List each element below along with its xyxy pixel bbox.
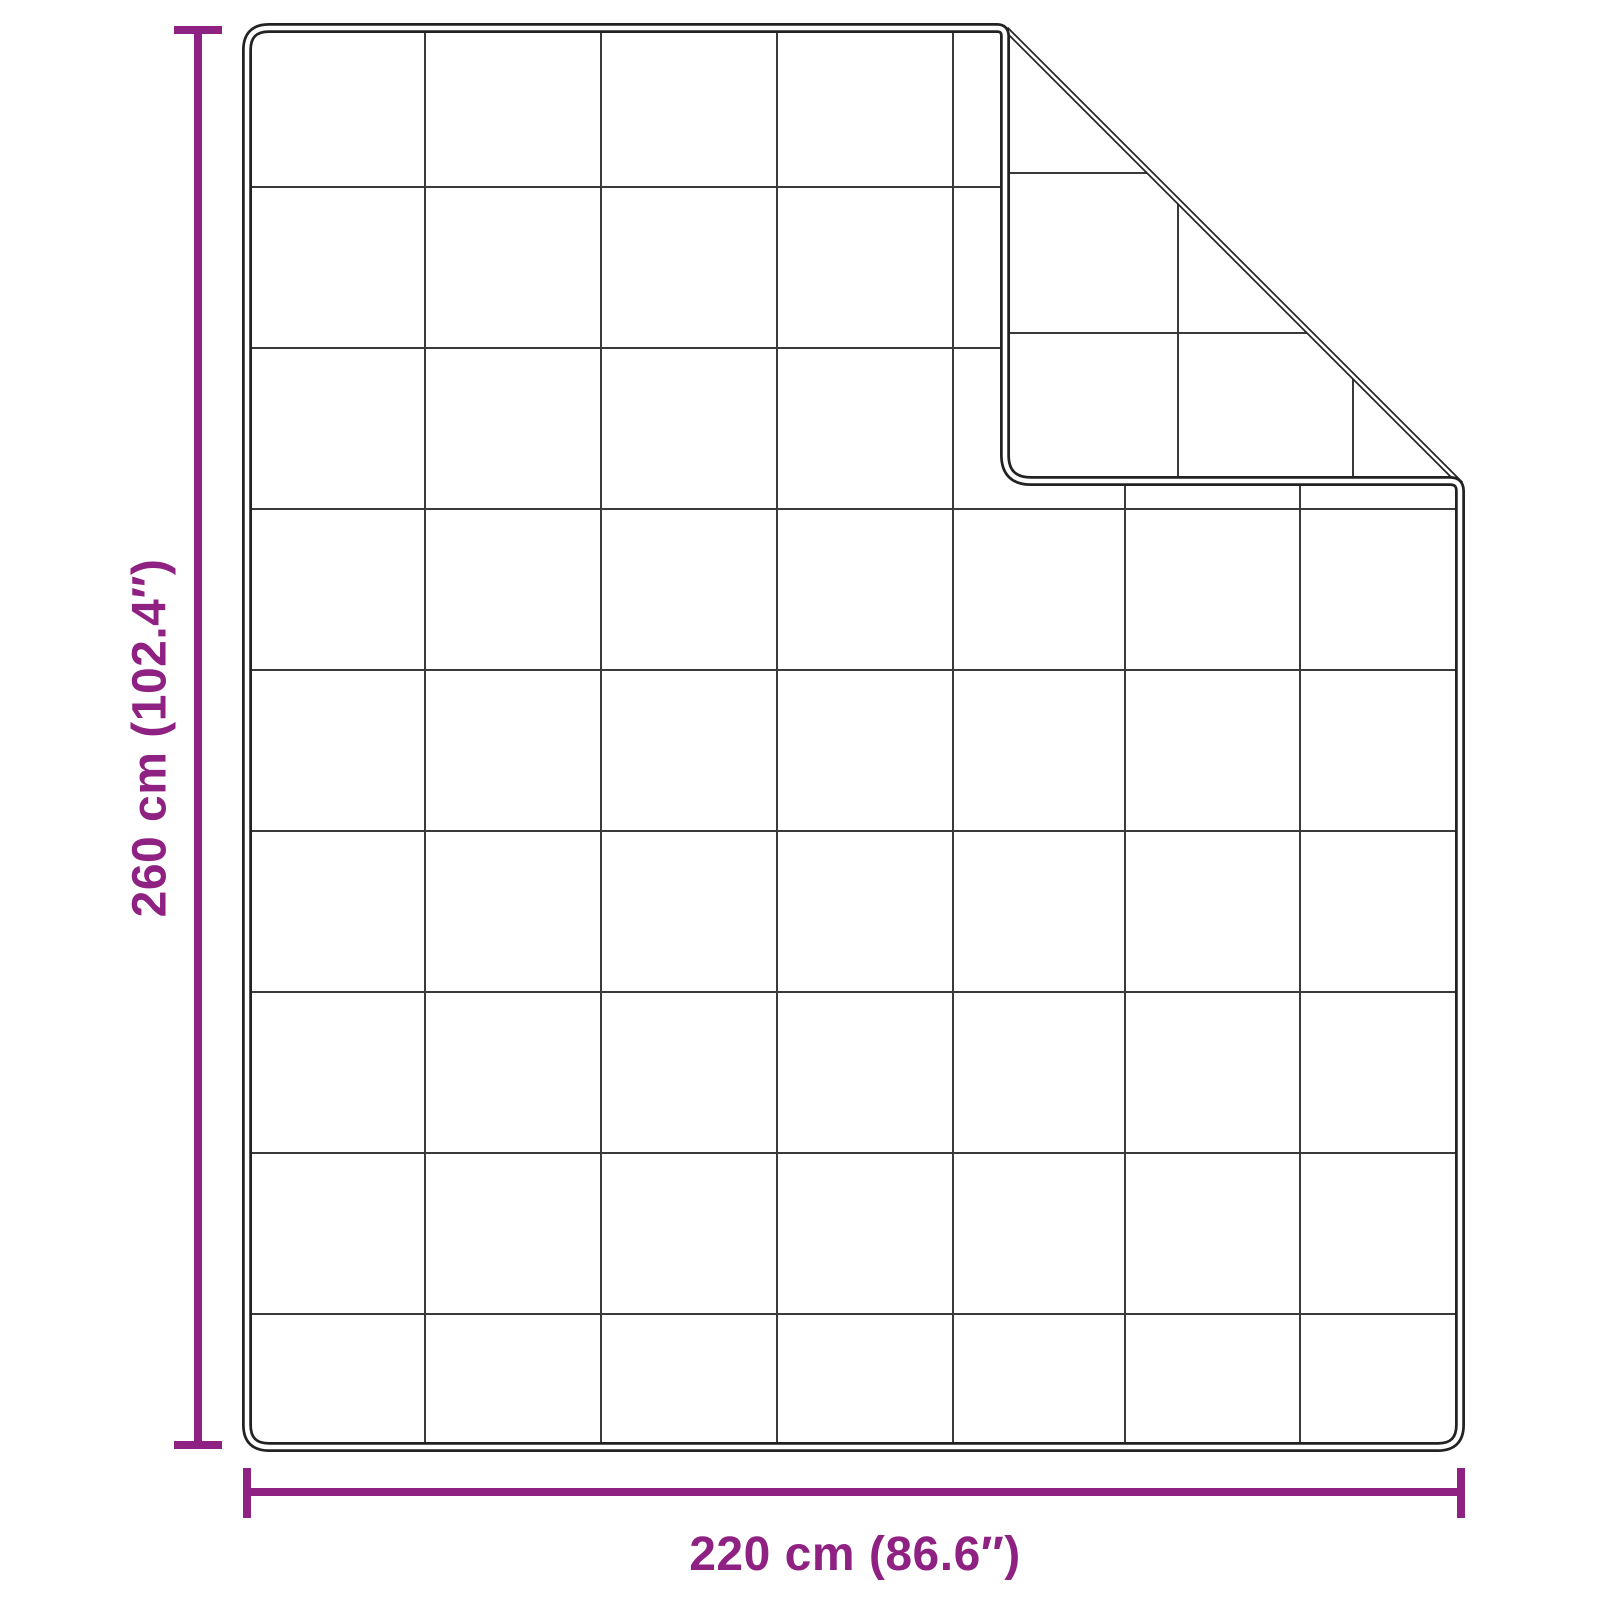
diagram-canvas: 260 cm (102.4″) 220 cm (86.6″) [0, 0, 1600, 1600]
width-dimension [247, 1468, 1461, 1518]
width-dimension-label: 220 cm (86.6″) [689, 1528, 1021, 1581]
blanket-body-fill [247, 28, 1460, 1447]
height-dimension-label: 260 cm (102.4″) [124, 559, 177, 918]
blanket-dimension-diagram: 260 cm (102.4″) 220 cm (86.6″) [0, 0, 1600, 1600]
height-dimension [174, 30, 222, 1445]
